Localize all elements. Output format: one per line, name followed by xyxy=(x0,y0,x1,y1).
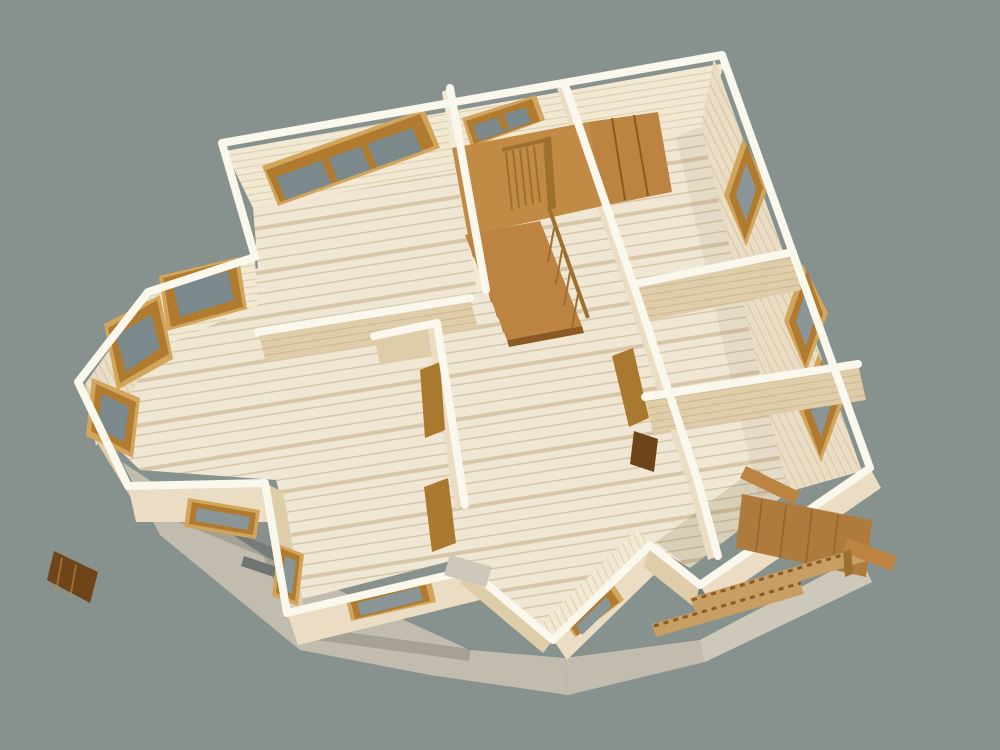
house-floorplan-render xyxy=(0,0,1000,750)
render-viewport xyxy=(0,0,1000,750)
